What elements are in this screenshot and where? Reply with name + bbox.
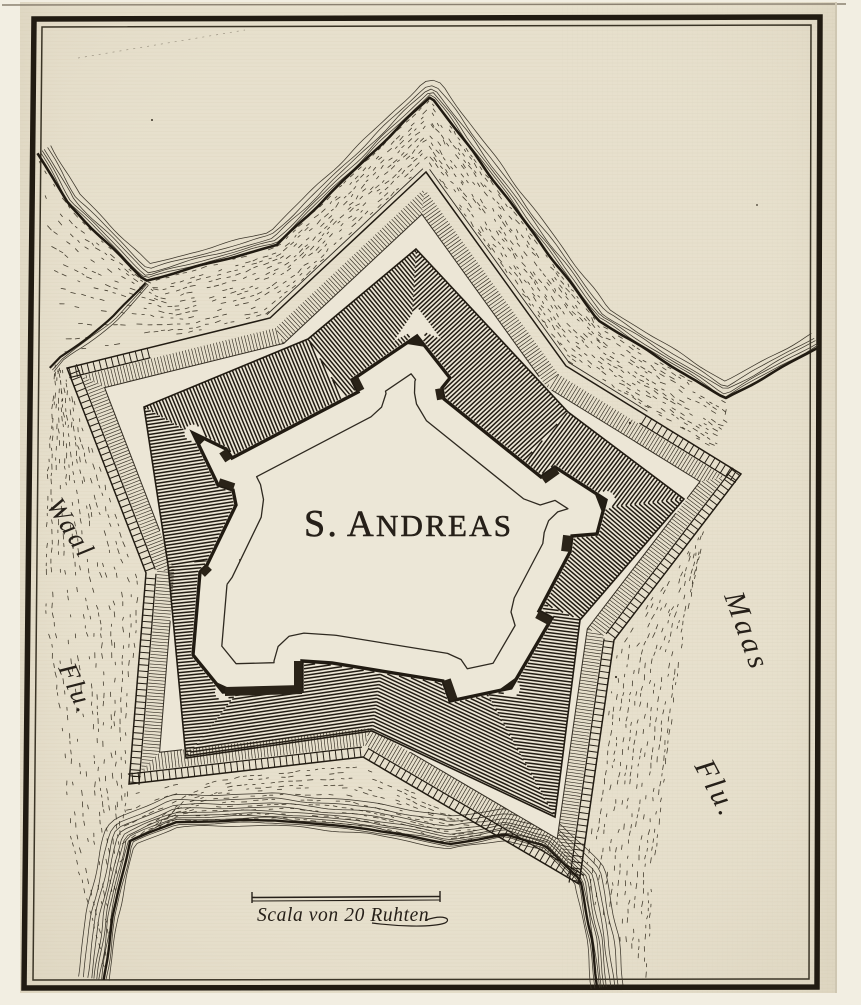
svg-text:Scala von 20 Ruhten: Scala von 20 Ruhten xyxy=(257,905,429,926)
svg-text:S.ANDREAS: S.ANDREAS xyxy=(304,503,513,545)
